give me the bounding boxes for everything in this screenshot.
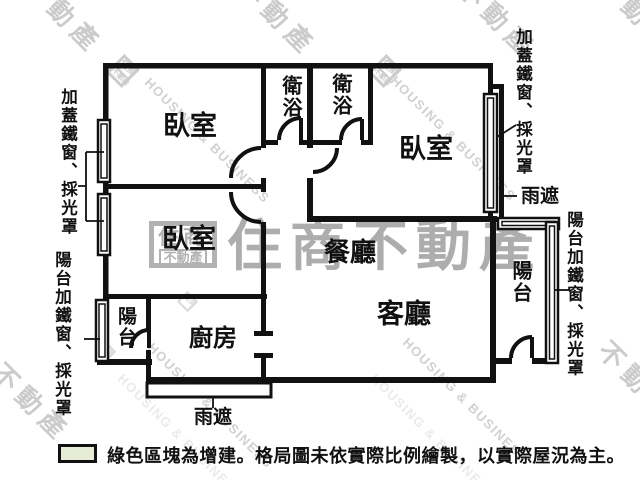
kitchen-door-jamb-2 [254,353,273,358]
floor-plan: 不動產 不動產 不動產 不動產 不動產 不動產 HOUSING & BUSINE… [0,0,640,480]
annotation-rain-bottom: 雨遮 [194,408,232,427]
door-bedroom2 [231,192,261,222]
wall-bath2-bottom-l [313,140,342,145]
wall-kitchen-right-b [261,357,266,383]
legend-text: 綠色區塊為增建。格局圖未依實際比例繪製，以實際屋況為主。 [107,442,625,468]
wall-bath2-right [368,63,373,145]
wall-top [103,63,493,69]
room-label-bath1: 衛浴 [280,75,300,119]
wall-center-a [261,63,266,148]
wall-bedroom-divider [103,184,266,189]
door-bath1 [279,118,301,140]
door-bedroom3 [313,148,337,172]
legend-green-swatch [58,444,97,463]
annotation-rain-right: 雨遮 [521,187,559,206]
wall-bedroom3-bottom [307,216,497,222]
wall-left-c [103,252,109,299]
wall-bath1-bottom-r [299,140,307,145]
window-bedroom2-inner [101,198,107,251]
wall-kitchen-left-b [146,350,151,383]
door-bedroom1 [231,148,261,178]
room-label-bedroom2: 臥室 [162,226,216,253]
wall-kitchen-top [103,294,267,299]
wall-living-right [490,222,496,383]
room-label-balcony-right: 陽台 [510,260,530,304]
annotation-right-bottom: 陽台加鐵窗、採光罩 [565,211,582,378]
wall-center-b [261,178,266,192]
wall-bath2-bottom-r [361,140,368,145]
room-label-bedroom1: 臥室 [163,113,217,140]
wall-center-c [261,222,266,299]
room-label-kitchen: 廚房 [189,327,237,351]
wall-left-a [103,63,109,122]
window-addon-strip-inner [488,98,494,208]
wall-bedroom3-left [307,178,313,222]
door-balcony-right [511,337,532,358]
wall-bath-mid-a [307,63,313,148]
wall-balcony-right-bottom-l [496,358,512,364]
room-label-living: 客廳 [377,301,431,328]
window-balcony-right-inner [550,226,555,359]
floor-plan-drawing [0,0,640,480]
annotation-left-top: 加蓋鐵窗、採光罩 [59,88,76,236]
room-label-dining: 餐廳 [324,239,376,265]
door-bath2 [341,119,362,140]
room-label-bath2: 衛浴 [330,73,350,117]
wall-kitchen-left-a [146,299,151,332]
room-label-bedroom3: 臥室 [399,136,453,163]
annotation-right-top: 加蓋鐵窗、採光罩 [514,28,531,176]
kitchen-door-jamb-1 [254,331,273,336]
wall-kitchen-right-a [261,299,266,333]
wall-addon-strip-outer [499,84,504,218]
annotation-left-bottom: 陽台加鐵窗、採光罩 [53,251,70,418]
window-bedroom1-inner [101,124,107,178]
room-label-balcony-left: 陽台 [116,306,135,348]
wall-bath1-bottom-l [266,140,278,145]
window-balcony-left-inner [99,304,105,357]
rain-shield-box [147,383,271,397]
